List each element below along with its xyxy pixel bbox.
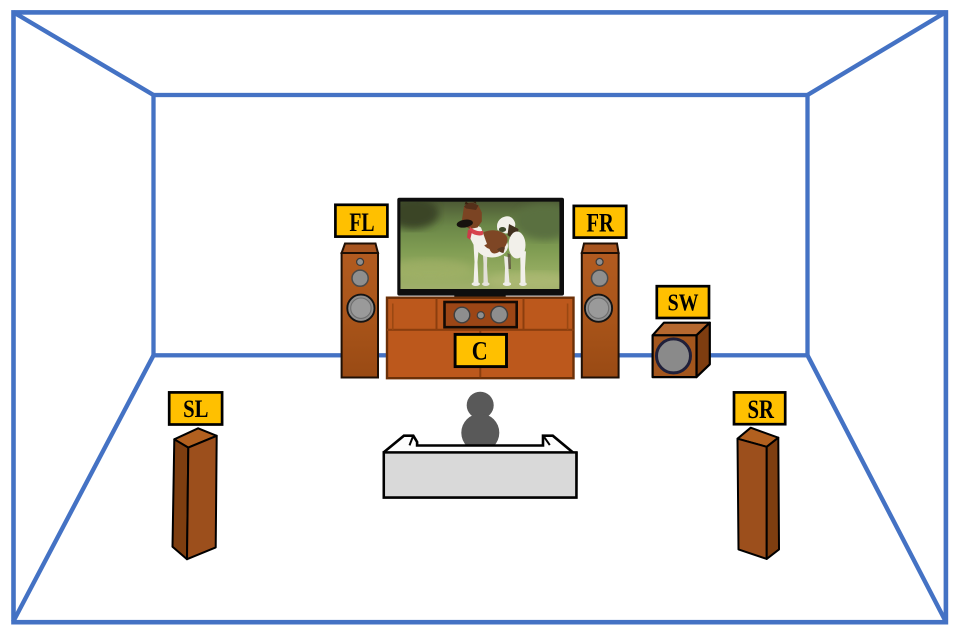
svg-text:SL: SL (183, 394, 208, 423)
svg-text:SW: SW (668, 291, 699, 317)
svg-text:FR: FR (586, 208, 614, 238)
svg-text:SR: SR (748, 395, 775, 424)
svg-text:C: C (472, 337, 488, 366)
svg-text:FL: FL (349, 207, 374, 237)
